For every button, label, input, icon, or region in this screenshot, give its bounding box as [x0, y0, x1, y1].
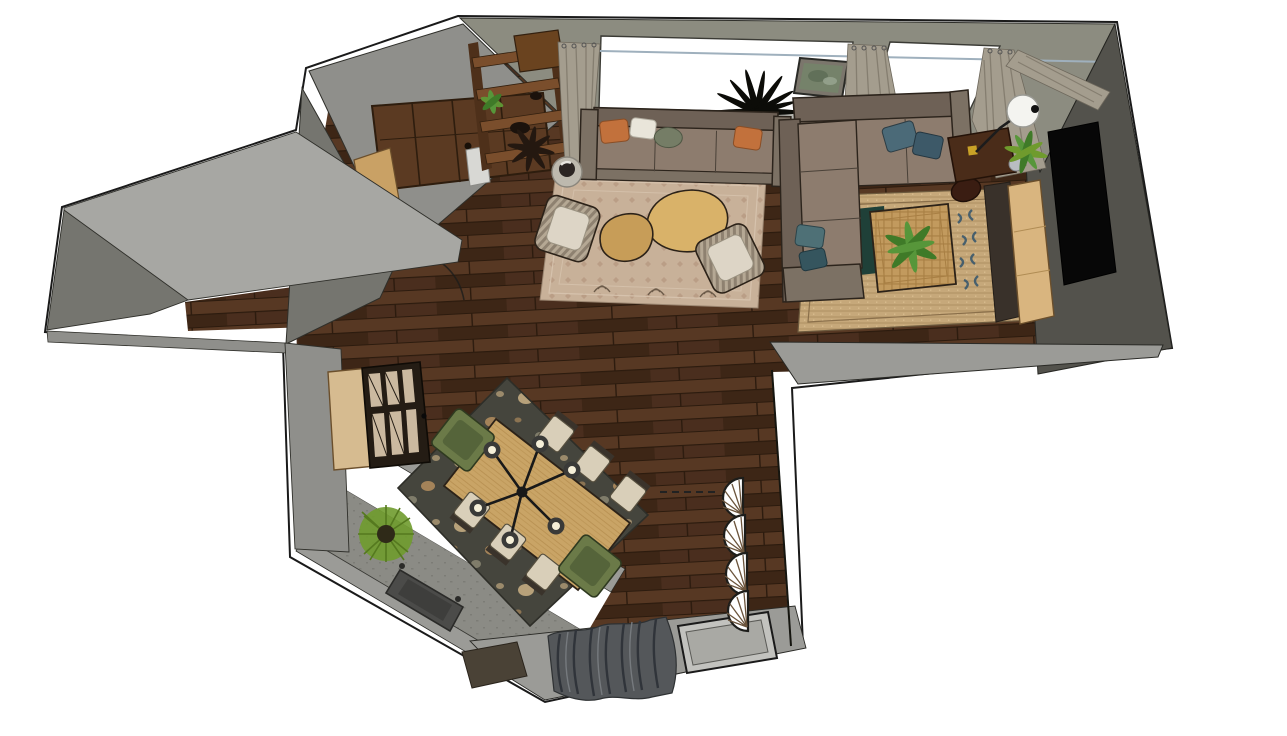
- right-room-south-wall: [770, 342, 1163, 384]
- wall-art[interactable]: [794, 58, 848, 98]
- pillow-orange-2: [733, 126, 763, 151]
- living-room: [507, 107, 791, 308]
- pillow-white: [629, 117, 656, 139]
- sofa[interactable]: [579, 107, 791, 186]
- side-table[interactable]: [552, 157, 582, 187]
- media-cabinet[interactable]: [948, 128, 1016, 182]
- pillow-teal-1: [795, 224, 826, 249]
- square-coffee-table[interactable]: [870, 204, 956, 292]
- sideboard-knob: [421, 413, 426, 418]
- door-handle: [465, 143, 472, 150]
- pillow-sage: [654, 127, 683, 148]
- sideboard[interactable]: [328, 362, 430, 470]
- coffee-table-small[interactable]: [600, 214, 653, 262]
- floorplan-3d-viewport[interactable]: [0, 0, 1287, 736]
- shelf-top-box: [514, 30, 564, 72]
- pillow-orange: [599, 119, 629, 144]
